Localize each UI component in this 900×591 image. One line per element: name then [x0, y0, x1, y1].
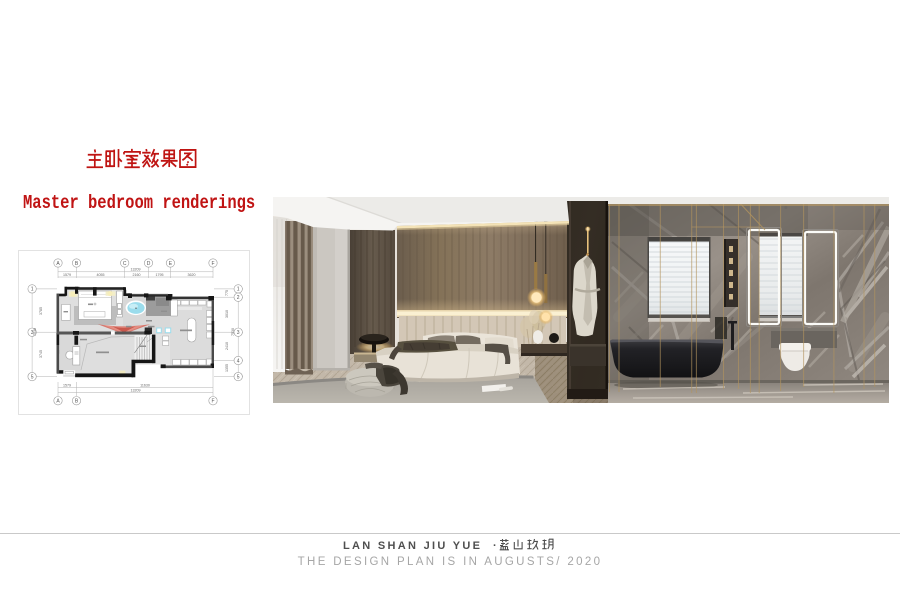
- svg-text:1: 1: [237, 287, 240, 293]
- svg-text:4: 4: [237, 358, 240, 364]
- svg-text:1355: 1355: [225, 364, 229, 372]
- svg-text:2410: 2410: [225, 342, 229, 350]
- svg-text:F: F: [211, 261, 214, 267]
- svg-text:D: D: [147, 261, 151, 267]
- svg-text:1579: 1579: [63, 384, 71, 388]
- svg-text:775: 775: [225, 290, 229, 296]
- svg-text:5: 5: [31, 374, 34, 380]
- svg-text:1579: 1579: [63, 273, 71, 277]
- svg-text:C: C: [123, 261, 127, 267]
- svg-text:2160: 2160: [133, 273, 141, 277]
- svg-text:7530: 7530: [33, 328, 37, 336]
- svg-text:3785: 3785: [39, 307, 43, 315]
- svg-text:1795: 1795: [156, 273, 164, 277]
- svg-text:11630: 11630: [140, 384, 150, 388]
- svg-text:3: 3: [237, 330, 240, 336]
- svg-text:4055: 4055: [97, 273, 105, 277]
- svg-text:F: F: [211, 399, 214, 405]
- svg-text:3620: 3620: [188, 273, 196, 277]
- svg-text:5: 5: [237, 374, 240, 380]
- svg-text:7530: 7530: [231, 328, 235, 336]
- svg-text:3010: 3010: [225, 310, 229, 318]
- svg-text:13209: 13209: [131, 268, 141, 272]
- svg-text:13209: 13209: [131, 389, 141, 393]
- svg-text:2: 2: [237, 295, 240, 301]
- svg-text:1: 1: [31, 287, 34, 293]
- svg-text:3745: 3745: [39, 350, 43, 358]
